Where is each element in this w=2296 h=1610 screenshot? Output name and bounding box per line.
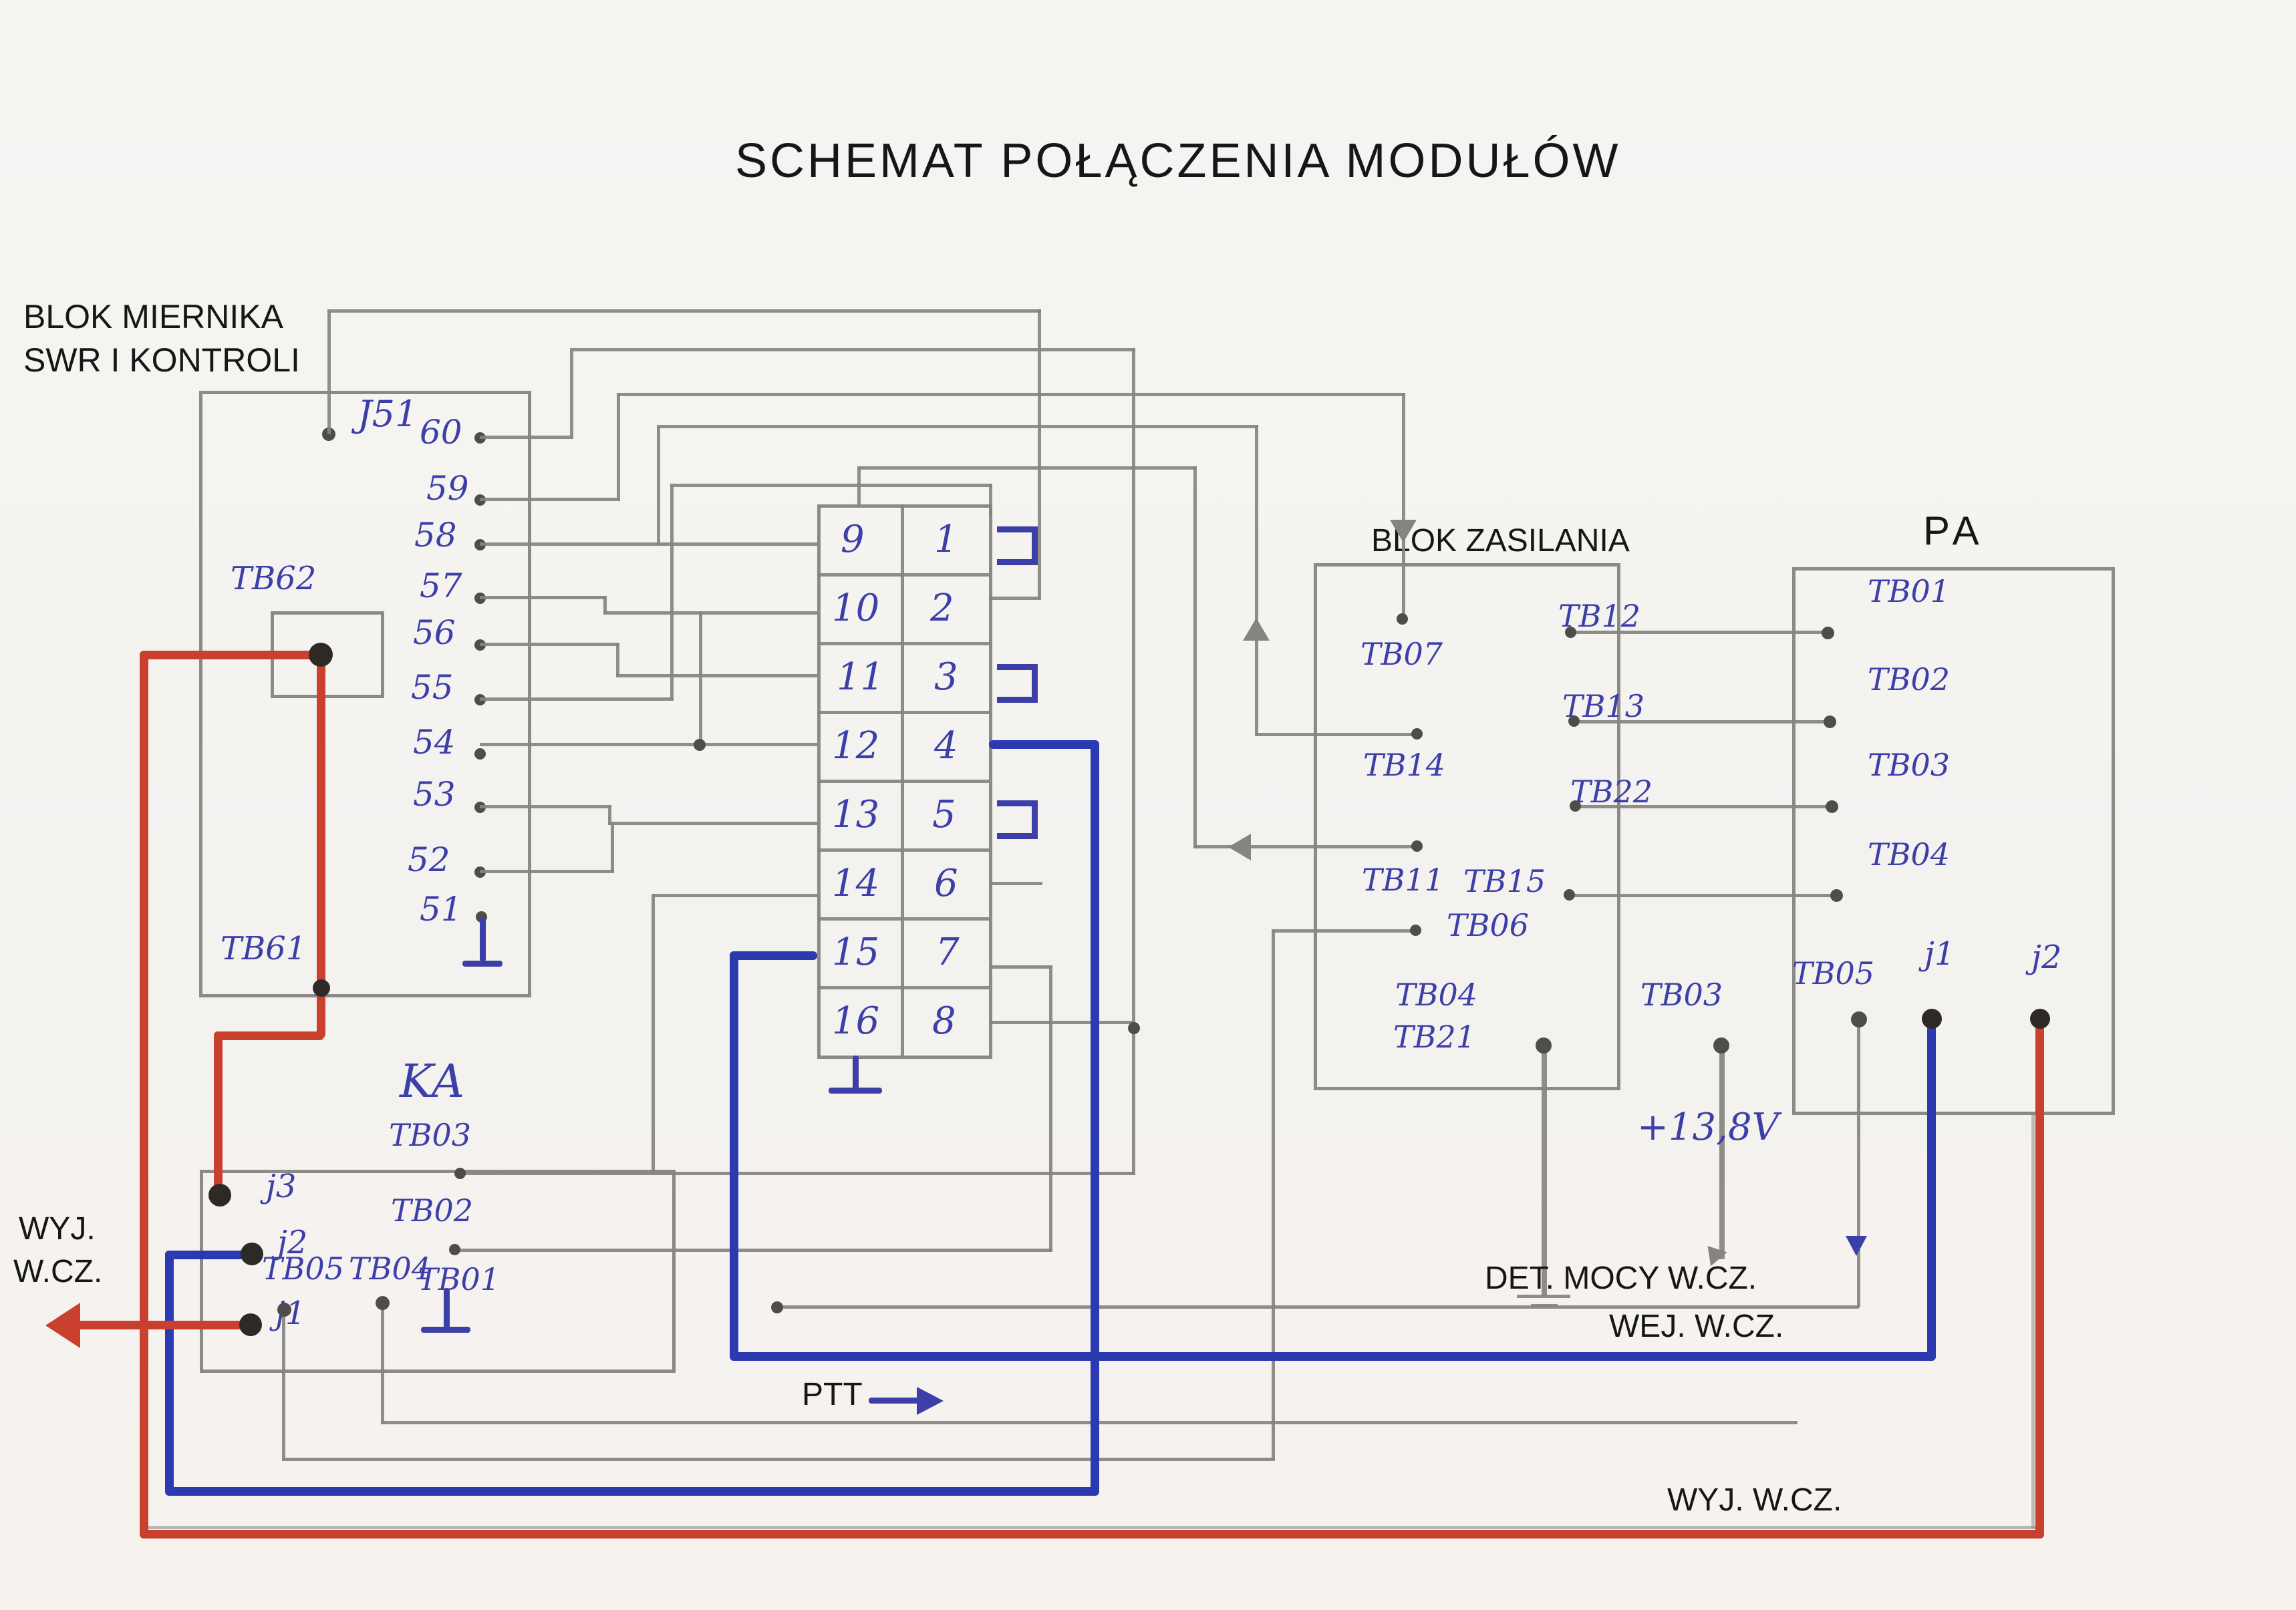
wire-busA-down <box>1038 309 1041 599</box>
connector-row-divider <box>817 711 989 714</box>
connector-row-divider <box>817 986 989 989</box>
wire-busE-up <box>657 426 660 545</box>
pin-label-57: 57 <box>420 567 462 605</box>
tb06-label: TB06 <box>1447 907 1529 943</box>
det-mocy-label: DET. MOCY W.CZ. <box>1485 1260 1757 1297</box>
pa-block-label: PA <box>1923 508 1985 554</box>
ka-j1-dot <box>239 1313 262 1336</box>
wire-katb02 <box>454 1249 1052 1252</box>
wire-52-up <box>611 822 614 873</box>
pa-tb05-dot <box>1851 1011 1867 1027</box>
wire-katb03 <box>460 1172 1134 1175</box>
swr-meter-block-label-2: SWR I KONTROLI <box>23 341 300 379</box>
ka-j2-dot <box>241 1243 263 1265</box>
blue-lower-run <box>165 1487 1099 1496</box>
tb15-dot <box>1564 889 1575 901</box>
ka-tb02-label: TB02 <box>391 1192 473 1229</box>
conn-pin-13: 13 <box>832 793 879 836</box>
ptt-arrow-line <box>869 1398 921 1404</box>
wire-60-up <box>570 349 573 438</box>
blue-j1-up <box>1927 1019 1936 1361</box>
wire-pin8 <box>989 1021 1134 1024</box>
pin-label-54: 54 <box>413 723 456 762</box>
red-antenna-arrow <box>45 1303 80 1348</box>
conn-pin-15: 15 <box>832 931 879 974</box>
red-jog <box>214 1031 324 1040</box>
schematic-page: SCHEMAT POŁĄCZENIA MODUŁÓW BLOK MIERNIKA… <box>0 0 2296 1610</box>
wire-pin14-down <box>652 894 655 1174</box>
wire-busD <box>617 393 1405 396</box>
connector-row-divider <box>817 917 989 921</box>
wire-tb03p-stem <box>1719 1045 1725 1259</box>
ka-tb02-dot <box>449 1244 460 1255</box>
arrow-left-tb11 <box>1228 834 1251 860</box>
pin-label-56: 56 <box>413 613 456 652</box>
wire-j51-up <box>327 311 331 434</box>
wire-tb11-down <box>1193 466 1197 848</box>
wire-57-a <box>480 596 607 599</box>
pa-tb02-label: TB02 <box>1868 661 1950 697</box>
det-line-end <box>771 1301 783 1313</box>
wire-58-pin9 <box>480 542 817 546</box>
tb61-label: TB61 <box>221 930 306 967</box>
pin-label-60: 60 <box>420 413 462 452</box>
wire-56-jog <box>616 643 619 676</box>
wire-busE <box>657 425 1258 428</box>
pa-tb05-label: TB05 <box>1792 955 1874 991</box>
conn-pin-10: 10 <box>832 587 879 630</box>
wire-tb06-down <box>1272 929 1275 1460</box>
red-j2-up <box>2035 1019 2044 1537</box>
wire-60-stub <box>480 436 573 439</box>
blue-kaj2-up <box>165 1251 174 1494</box>
wire-tb07-down <box>1402 393 1405 619</box>
wyj-wcz-bottom-label: WYJ. W.CZ. <box>1667 1482 1842 1518</box>
tb07-label: TB07 <box>1360 636 1443 672</box>
wire-59-stub <box>480 498 620 501</box>
tb06-dot <box>1410 925 1421 936</box>
wire-katb05-stem <box>282 1311 285 1460</box>
wire-busG <box>670 484 992 487</box>
wire-tb04p-stem <box>1542 1045 1547 1296</box>
conn-pin-12: 12 <box>832 724 879 768</box>
pa-tb02-dot <box>1824 715 1836 728</box>
voltage-label: +13,8V <box>1637 1106 1779 1149</box>
wire-pin9-top <box>857 468 861 506</box>
swr-meter-block-label-1: BLOK MIERNIKA <box>23 297 283 336</box>
wire-busA <box>327 309 1041 313</box>
ptt-label: PTT <box>802 1376 863 1413</box>
wire-pin1-down <box>989 484 992 516</box>
tb22-label: TB22 <box>1570 774 1653 810</box>
red-jog-down <box>214 1031 223 1196</box>
page-title: SCHEMAT POŁĄCZENIA MODUŁÓW <box>735 134 1621 188</box>
wire-busB-down <box>1132 348 1135 1175</box>
blue-pin15-down <box>730 951 738 1359</box>
j51-connector-label: J51 <box>357 393 418 435</box>
tb61-junction <box>313 979 330 997</box>
red-tb62-in <box>144 651 323 659</box>
ka-tb04-dot <box>376 1296 390 1310</box>
pencil-guide-right <box>2031 1112 2035 1528</box>
pa-j1-label: j1 <box>1924 935 1955 973</box>
ka-block-label: KA <box>400 1056 464 1108</box>
arrow-down-det <box>1846 1236 1867 1256</box>
tb21-label: TB21 <box>1393 1019 1475 1055</box>
wej-wcz-label: WEJ. W.CZ. <box>1609 1308 1783 1345</box>
tb22-dot <box>1570 800 1581 812</box>
blue-pin4-down <box>1091 740 1099 1494</box>
tb07-dot <box>1397 613 1408 625</box>
connector-row-divider <box>817 780 989 783</box>
tb11-label: TB11 <box>1362 862 1444 898</box>
blue-pin4 <box>989 740 1099 749</box>
wire-57-branch <box>699 611 702 745</box>
wire-55-a <box>480 697 674 701</box>
tb03p-label: TB03 <box>1640 977 1723 1013</box>
connector-row-divider <box>817 573 989 577</box>
ka-tb01-ground-stem <box>444 1288 450 1329</box>
tb15-label: TB15 <box>1463 863 1546 899</box>
conn-pin-16: 16 <box>832 999 879 1043</box>
tb04p-label: TB04 <box>1395 977 1477 1013</box>
junction-pin8-bus <box>1128 1022 1140 1034</box>
pin-label-58: 58 <box>414 516 457 554</box>
wire-ptt-run <box>381 1421 1798 1424</box>
ka-tb03-label: TB03 <box>389 1117 471 1153</box>
pa-j2-dot <box>2030 1009 2050 1029</box>
tb13-dot <box>1568 715 1580 727</box>
conn-pin-9: 9 <box>841 518 865 561</box>
wyj-wcz-left-label-1: WYJ. <box>19 1211 96 1247</box>
red-wyj-run <box>140 1530 2044 1539</box>
wire-56-b <box>616 674 817 677</box>
pin-label-53: 53 <box>413 775 456 814</box>
wire-57-b <box>603 611 817 615</box>
conn-pin-14: 14 <box>832 862 879 905</box>
wire-59-up <box>617 394 620 500</box>
ka-tb01-label: TB01 <box>418 1261 500 1297</box>
connector-row-divider <box>817 848 989 852</box>
pa-tb03-label: TB03 <box>1868 747 1950 783</box>
conn-pin-2: 2 <box>930 587 954 630</box>
tb11-dot <box>1411 840 1423 852</box>
connector-row-divider <box>817 642 989 645</box>
wire-busF <box>857 466 1197 470</box>
conn-pin-8: 8 <box>932 999 956 1043</box>
tb62-label: TB62 <box>231 560 316 597</box>
pin-label-51: 51 <box>420 890 462 929</box>
wire-pin7-down <box>1049 965 1052 1252</box>
wire-katb04-stem <box>381 1304 384 1424</box>
conn-pin-5: 5 <box>932 793 956 836</box>
blue-wej-run <box>730 1352 1936 1361</box>
arrow-down-tb07 <box>1390 520 1417 542</box>
conn-pin-1: 1 <box>934 518 958 561</box>
conn-pin-11: 11 <box>837 655 884 699</box>
red-kaj1-in <box>63 1321 254 1329</box>
bracket-icon-row3 <box>997 664 1038 703</box>
wire-tb14-down <box>1255 425 1258 736</box>
pa-tb04-dot <box>1830 889 1843 902</box>
tb14-label: TB14 <box>1363 747 1445 783</box>
wire-tb11-in <box>1193 845 1419 848</box>
wire-53-b <box>608 822 817 825</box>
pin-label-59: 59 <box>426 469 469 508</box>
wire-tb15-tb04 <box>1569 894 1840 897</box>
wire-busA-to-pin2 <box>989 597 1041 600</box>
bracket-icon-row5 <box>997 800 1038 839</box>
pin-label-52: 52 <box>408 840 450 879</box>
ground-51-stem <box>480 918 486 962</box>
pa-j2-label: j2 <box>2031 939 2061 976</box>
wire-pin6-stub <box>989 882 1042 885</box>
pa-tb03-dot <box>1826 800 1838 813</box>
tb04p-dot <box>1536 1037 1552 1054</box>
ka-tb01-ground-bar <box>421 1327 470 1333</box>
ground-51-bar <box>462 961 503 967</box>
ka-j3-dot <box>208 1184 231 1206</box>
pencil-guide-bottom <box>144 1526 2039 1529</box>
pin-dot-54 <box>474 748 486 760</box>
wire-busB <box>570 348 1135 351</box>
tb12-dot <box>1565 627 1576 638</box>
pa-tb01-dot <box>1822 627 1834 639</box>
red-left-down <box>140 651 148 1535</box>
pa-tb01-label: TB01 <box>1868 573 1950 609</box>
ka-j3-label: j3 <box>266 1168 296 1205</box>
pa-tb04-label: TB04 <box>1868 836 1950 872</box>
conn-pin-6: 6 <box>934 862 958 905</box>
pin-label-55: 55 <box>411 668 454 707</box>
wire-pin14 <box>653 894 817 897</box>
blue-pin15 <box>730 951 817 960</box>
wire-tb14-in <box>1255 733 1419 736</box>
wire-56-a <box>480 643 619 646</box>
tb03p-dot <box>1713 1037 1729 1054</box>
arrow-up-tb14 <box>1243 618 1270 641</box>
conn-pin-7: 7 <box>936 931 960 974</box>
wire-tb06-out <box>1272 929 1415 933</box>
tb14-dot <box>1411 728 1423 740</box>
junction-pin12 <box>694 739 706 751</box>
pa-block-outline <box>1792 567 2115 1115</box>
wire-54-pin12 <box>480 743 817 746</box>
connector-ground-stem <box>853 1056 859 1090</box>
conn-pin-4: 4 <box>934 724 958 768</box>
wire-55-up <box>670 485 674 700</box>
ptt-arrow-head <box>917 1387 944 1415</box>
ka-tb05-label: TB05 <box>262 1251 344 1287</box>
conn-pin-3: 3 <box>934 655 958 699</box>
wire-52-a <box>480 870 614 873</box>
ka-tb03-dot <box>454 1168 466 1179</box>
wire-pin7 <box>989 965 1052 969</box>
wire-pa-tb05-down <box>1857 1019 1860 1307</box>
wire-53-a <box>480 805 611 808</box>
wyj-wcz-left-label-2: W.CZ. <box>13 1253 102 1290</box>
ka-tb05-dot <box>277 1303 291 1317</box>
tb62-junction <box>309 643 333 667</box>
wire-katb05-run <box>282 1458 1275 1461</box>
pa-j1-dot <box>1922 1009 1942 1029</box>
connector-ground-bar <box>829 1088 882 1094</box>
bracket-icon-row1 <box>997 526 1038 565</box>
